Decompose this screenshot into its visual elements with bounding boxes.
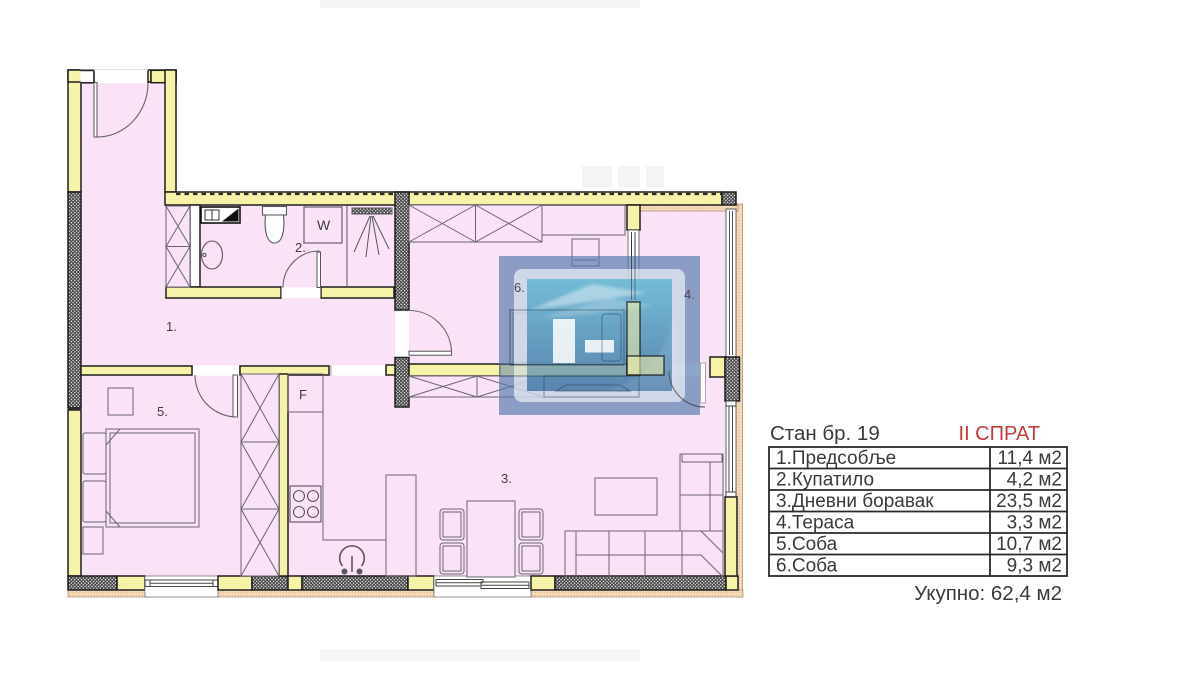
svg-text:9,3 м2: 9,3 м2 (1007, 556, 1062, 577)
svg-text:4.Тераса: 4.Тераса (776, 513, 855, 534)
svg-text:4,2 м2: 4,2 м2 (1007, 470, 1062, 491)
svg-text:Стан бр. 19: Стан бр. 19 (770, 422, 880, 445)
svg-text:1.Предсобље: 1.Предсобље (776, 448, 896, 469)
svg-text:5.: 5. (157, 404, 168, 419)
svg-text:10,7 м2: 10,7 м2 (996, 534, 1062, 555)
svg-text:4.: 4. (684, 287, 695, 302)
svg-text:3,3 м2: 3,3 м2 (1007, 513, 1062, 534)
svg-text:Укупно: 62,4 м2: Укупно: 62,4 м2 (914, 582, 1062, 605)
svg-text:II СПРАТ: II СПРАТ (959, 423, 1040, 445)
svg-text:F: F (299, 387, 307, 402)
svg-text:6.: 6. (514, 280, 525, 295)
svg-text:6.Соба: 6.Соба (776, 556, 838, 577)
svg-text:5.Соба: 5.Соба (776, 534, 838, 555)
svg-text:3.Дневни боравак: 3.Дневни боравак (776, 491, 934, 512)
svg-text:23,5 м2: 23,5 м2 (996, 491, 1062, 512)
svg-text:2.: 2. (295, 240, 306, 255)
svg-text:3.: 3. (501, 471, 512, 486)
svg-text:W: W (317, 217, 331, 233)
svg-text:1.: 1. (166, 319, 177, 334)
svg-text:11,4 м2: 11,4 м2 (998, 448, 1062, 469)
svg-text:2.Купатило: 2.Купатило (776, 470, 874, 491)
